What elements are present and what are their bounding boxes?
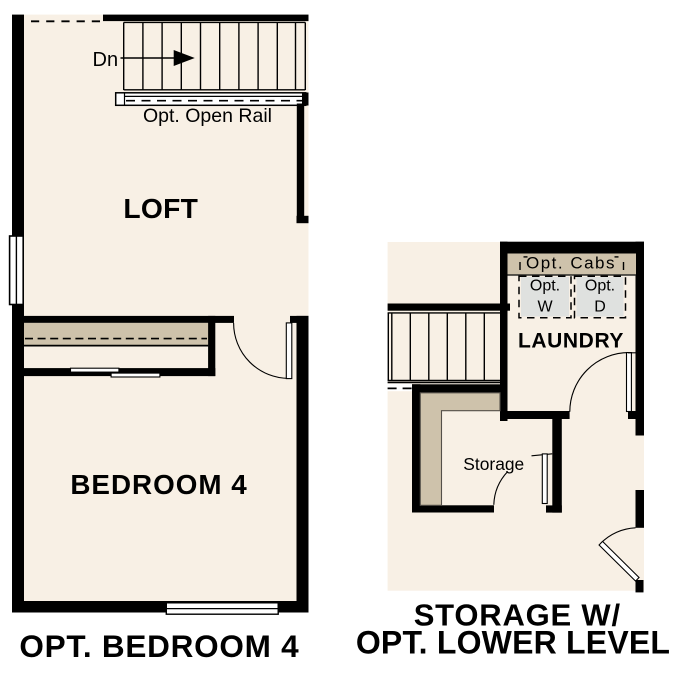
svg-text:BEDROOM 4: BEDROOM 4 bbox=[70, 469, 247, 500]
svg-text:W: W bbox=[537, 298, 553, 315]
svg-text:LAUNDRY: LAUNDRY bbox=[518, 329, 624, 352]
svg-text:OPT. LOWER LEVEL: OPT. LOWER LEVEL bbox=[356, 625, 670, 661]
svg-text:Dn: Dn bbox=[93, 49, 119, 71]
svg-text:LOFT: LOFT bbox=[123, 192, 198, 224]
svg-text:Opt. Open Rail: Opt. Open Rail bbox=[143, 105, 272, 127]
svg-text:D: D bbox=[594, 298, 606, 315]
svg-text:OPT. BEDROOM 4: OPT. BEDROOM 4 bbox=[19, 628, 299, 664]
svg-text:Storage: Storage bbox=[463, 454, 524, 474]
svg-text:Opt. Cabs: Opt. Cabs bbox=[526, 254, 616, 273]
svg-text:Opt.: Opt. bbox=[585, 277, 615, 294]
svg-text:Opt.: Opt. bbox=[530, 277, 560, 294]
